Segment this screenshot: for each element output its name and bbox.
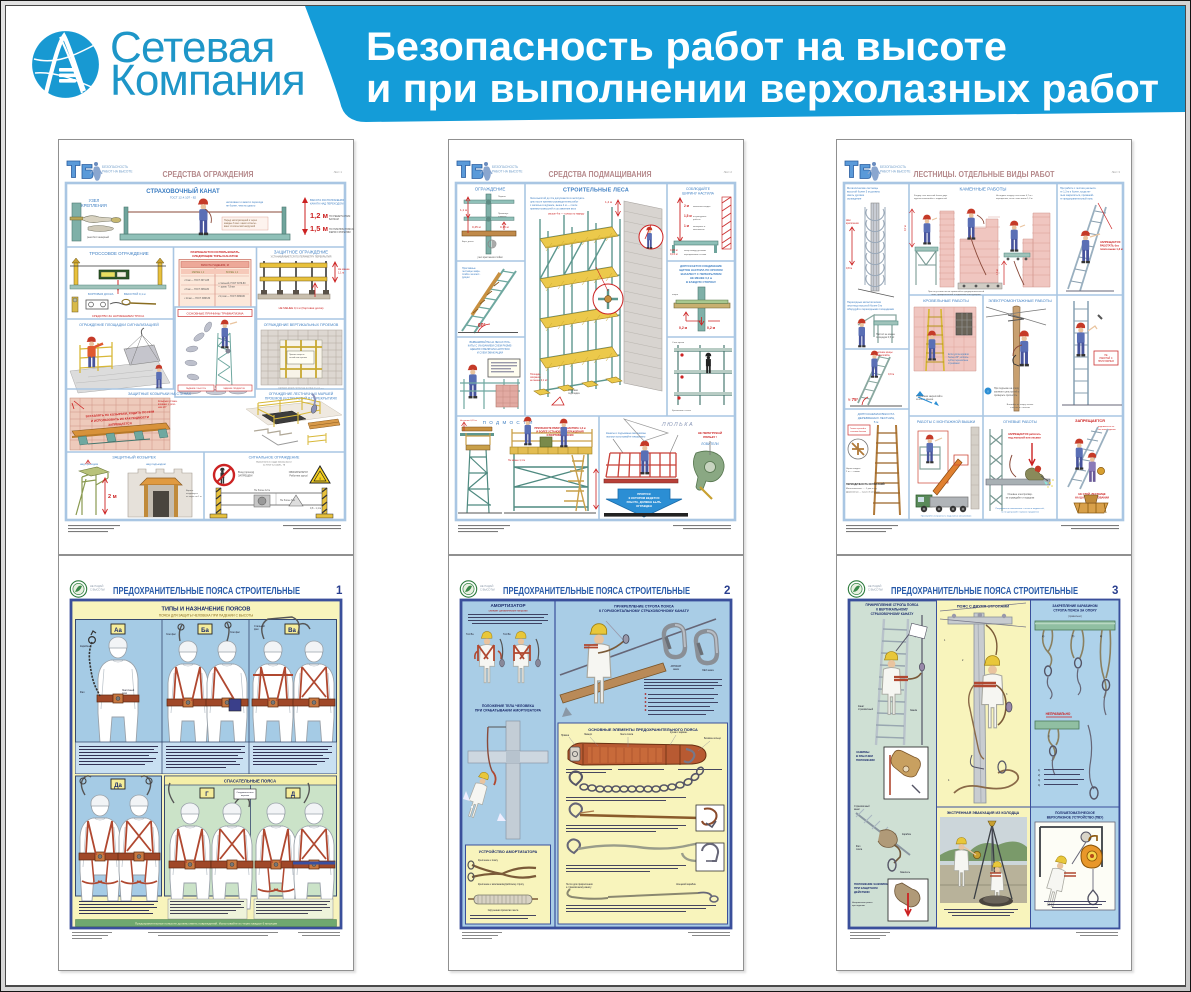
svg-text:ЩЕНИЯ И ВЕЛИЧИН НАГРУЗОК: ЩЕНИЯ И ВЕЛИЧИН НАГРУЗОК: [470, 347, 510, 351]
svg-text:• 8 мм — ГОСТ 3069-80: • 8 мм — ГОСТ 3069-80: [184, 289, 210, 291]
svg-text:СОБЛЮДАЙТЕ: СОБЛЮДАЙТЕ: [686, 187, 711, 191]
svg-text:веревка: веревка: [241, 795, 250, 797]
svg-text:1,4 м: 1,4 м: [605, 200, 612, 204]
svg-text:пояс, прикрепленный к надежным: пояс, прикрепленный к надежным конструкц…: [931, 293, 981, 296]
svg-text:0,2 м: 0,2 м: [707, 326, 716, 330]
svg-text:2 м: 2 м: [108, 494, 117, 500]
svg-text:штукатурные: штукатурные: [693, 216, 707, 218]
svg-text:2 м: 2 м: [684, 204, 690, 208]
svg-text:1: 1: [336, 585, 343, 597]
svg-text:БАЛКАМ: БАЛКАМ: [329, 218, 339, 221]
svg-text:Пряжка: Пряжка: [561, 735, 570, 737]
svg-text:Карабин: Карабин: [902, 834, 912, 836]
svg-text:ПРЕДОХРАНИТЕЛЬНЫЕ ПОЯСА СТРОИТ: ПРЕДОХРАНИТЕЛЬНЫЕ ПОЯСА СТРОИТЕЛЬНЫЕ: [891, 585, 1078, 597]
svg-text:ВЫСОТА РАСПОЛОЖЕНИЯ: ВЫСОТА РАСПОЛОЖЕНИЯ: [310, 198, 344, 202]
svg-text:оборудуйте переходными площадк: оборудуйте переходными площадками: [847, 307, 895, 311]
svg-text:НЕ ПАДАЙ: НЕ ПАДАЙ: [480, 584, 493, 588]
svg-text:РАБОТ НА ВЫСОТЕ: РАБОТ НА ВЫСОТЕ: [102, 170, 132, 174]
svg-text:Не более 12 м: Не более 12 м: [254, 489, 270, 492]
svg-text:ОГРАЖДЕНИЕ ВЕРТИКАЛЬНЫХ ПРОЕМО: ОГРАЖДЕНИЕ ВЕРТИКАЛЬНЫХ ПРОЕМОВ: [264, 323, 339, 327]
svg-text:БЕЗОПАСНОСТЬ: БЕЗОПАСНОСТЬ: [880, 165, 906, 169]
svg-text:от ворот на 1 м: от ворот на 1 м: [186, 496, 202, 498]
svg-text:РАБОТ НА ВЫСОТЕ: РАБОТ НА ВЫСОТЕ: [880, 170, 910, 174]
svg-text:СРЕДСТВА ОГРАЖДЕНИЯ: СРЕДСТВА ОГРАЖДЕНИЯ: [163, 169, 254, 179]
svg-text:при падении: при падении: [852, 905, 866, 907]
svg-text:ЗАПРЕЩЕН!: ЗАПРЕЩЕН!: [238, 475, 253, 478]
svg-text:ВЫВЕШИВАЙТЕ НА ЛЕСАХ ПЛА-: ВЫВЕШИВАЙТЕ НА ЛЕСАХ ПЛА-: [470, 340, 511, 344]
svg-text:!: !: [988, 390, 989, 394]
svg-text:И БОРТОВЫЕ ДОСКИ: И БОРТОВЫЕ ДОСКИ: [547, 434, 574, 437]
svg-text:замок: замок: [673, 669, 680, 671]
svg-text:КАМЕННЫЕ РАБОТЫ: КАМЕННЫЕ РАБОТЫ: [960, 187, 1007, 192]
svg-text:приемки комиссией и составлени: приемки комиссией и составления акта: [530, 208, 577, 211]
svg-text:Канаты и подъемные механизмы: Канаты и подъемные механизмы: [606, 431, 646, 435]
svg-text:пояса выше 1,3 м: пояса выше 1,3 м: [1100, 247, 1123, 251]
svg-text:ПРИКРЕПЛЕНИЕ СТРОПА ПОЯСА: ПРИКРЕПЛЕНИЕ СТРОПА ПОЯСА: [866, 603, 920, 607]
svg-text:Крепление к стене: Крепление к стене: [672, 410, 692, 412]
svg-text:Промежут.: Промежут.: [498, 213, 509, 215]
svg-text:Кладку стен высотой более двух: Кладку стен высотой более двух: [914, 194, 948, 197]
svg-text:Зажигель: Зажигель: [900, 872, 911, 874]
svg-text:стяжными болтами: стяжными болтами: [850, 431, 866, 433]
svg-text:ОГРАЖДЕН: ОГРАЖДЕН: [636, 504, 652, 508]
svg-text:ки ограждайте и подкурки: ки ограждайте и подкурки: [1006, 497, 1035, 500]
svg-text:Не более 6 м: Не более 6 м: [280, 499, 295, 502]
svg-text:СРЕДСТВА ПОДМАЩИВАНИЯ: СРЕДСТВА ПОДМАЩИВАНИЯ: [549, 169, 652, 179]
svg-text:рукции: рукции: [462, 276, 470, 279]
svg-text:• 6 мм — ГОСТ 3071-88: • 6 мм — ГОСТ 3071-88: [184, 280, 210, 282]
svg-text:Лист 1: Лист 1: [334, 170, 343, 174]
svg-text:Лента пояса: Лента пояса: [620, 734, 634, 736]
svg-text:закрепляйте: закрепляйте: [876, 354, 891, 357]
svg-text:Крепление к поясу: Крепление к поясу: [478, 860, 499, 862]
svg-text:Переходные металлические: Переходные металлические: [847, 300, 882, 304]
svg-text:Направление рывка: Направление рывка: [852, 902, 873, 904]
svg-text:не более, чем на одного: не более, чем на одного: [226, 204, 256, 208]
svg-text:1): 1): [1038, 769, 1040, 772]
svg-text:ЗАПРЕЩАЕТСЯ работать: ЗАПРЕЩАЕТСЯ работать: [1008, 432, 1041, 436]
svg-text:БЕЗ замка: БЕЗ замка: [702, 670, 714, 672]
svg-text:При отсутствии лесов применяйт: При отсутствии лесов применяйте предохра…: [928, 290, 985, 293]
svg-text:Безопасность работ на высоте: Безопасность работ на высоте: [366, 25, 1007, 69]
svg-text:Люверс: Люверс: [584, 734, 593, 736]
svg-text:пояс: пояс: [122, 692, 128, 695]
svg-text:Проверяйте исправность подъемн: Проверяйте исправность подъемных механиз…: [921, 515, 972, 518]
svg-text:ПОЛОЖЕНИИ: ПОЛОЖЕНИИ: [856, 758, 875, 762]
svg-text:ПРИСТАВНЫХ: ПРИСТАВНЫХ: [1098, 360, 1114, 363]
svg-text:отодвинуты: отодвинуты: [186, 493, 198, 495]
svg-text:2 м — стяжки: 2 м — стяжки: [846, 471, 860, 473]
svg-text:ОГРАЖДЕНИЕ: ОГРАЖДЕНИЕ: [475, 187, 506, 192]
svg-text:ГОСТ 12.4.107 - 82: ГОСТ 12.4.107 - 82: [170, 196, 197, 200]
svg-text:ПОЛУАВТОМАТИЧЕСКОЕ: ПОЛУАВТОМАТИЧЕСКОЕ: [1055, 811, 1095, 815]
svg-text:Кушак с карман.: Кушак с карман.: [670, 732, 688, 734]
svg-text:монтажные: монтажные: [693, 229, 705, 231]
svg-text:ограждение: ограждение: [847, 198, 862, 201]
svg-text:ЗАЩИТНЫЙ КОЗЫРЕК: ЗАЩИТНЫЙ КОЗЫРЕК: [112, 455, 156, 460]
svg-text:СПАСАТЕЛЬНЫЕ ПОЯСА: СПАСАТЕЛЬНЫЕ ПОЯСА: [224, 779, 276, 784]
svg-text:ПРЕДОХРАНИТЕЛЬНЫЕ ПОЯСА СТРОИТ: ПРЕДОХРАНИТЕЛЬНЫЕ ПОЯСА СТРОИТЕЛЬНЫЕ: [113, 585, 300, 597]
svg-text:ЗАЩИТНЫЕ КОЗЫРЬКИ НА СТЕНАХ: ЗАЩИТНЫЕ КОЗЫРЬКИ НА СТЕНАХ: [128, 392, 192, 396]
svg-text:К ГОРИЗОНТАЛЬНОМУ СТРАХОВОЧНОМ: К ГОРИЗОНТАЛЬНОМУ СТРАХОВОЧНОМУ КАНАТУ: [599, 609, 690, 613]
svg-text:Да: Да: [114, 783, 122, 789]
svg-text:Выполняется в виде безопасност: Выполняется в виде безопасности: [256, 462, 292, 464]
svg-text:Крепление к монтажному/рабочем: Крепление к монтажному/рабочему стропу: [478, 884, 525, 886]
svg-text:крепления: крепления: [846, 222, 859, 225]
svg-text:над подъездом: над подъездом: [146, 462, 166, 466]
svg-text:РАБОТАТЬ без: РАБОТАТЬ без: [1100, 244, 1120, 248]
svg-text:СИГНАЛЬНОЕ ОГРАЖДЕНИЕ: СИГНАЛЬНОЕ ОГРАЖДЕНИЕ: [249, 456, 300, 460]
svg-text:в когтях и с поясом: в когтях и с поясом: [1010, 407, 1030, 409]
svg-text:НЕ ПАДАЙ: НЕ ПАДАЙ: [90, 584, 103, 588]
svg-text:перекрытия, если стена выше 1,: перекрытия, если стена выше 1,3 м: [996, 198, 1033, 200]
svg-text:фал: фал: [254, 628, 259, 631]
svg-text:узел крепления стойки: узел крепления стойки: [477, 256, 503, 259]
svg-text:Влезайте на опору только: Влезайте на опору только: [1007, 403, 1034, 406]
svg-text:1,1 м: 1,1 м: [460, 208, 467, 212]
svg-text:ЗАЩИТНОЕ ОГРАЖДЕНИЕ: ЗАЩИТНОЕ ОГРАЖДЕНИЕ: [274, 250, 328, 255]
svg-text:Ва: Ва: [288, 628, 296, 634]
svg-text:проверьте прочность: проверьте прочность: [994, 394, 1018, 397]
svg-text:высотой более 5 м должны: высотой более 5 м должны: [847, 190, 880, 194]
svg-text:С ВЫСОТЫ!: С ВЫСОТЫ!: [480, 588, 495, 592]
svg-text:СТРАХОВОЧНЫЙ КАНАТ: СТРАХОВОЧНЫЙ КАНАТ: [146, 187, 220, 195]
svg-text:Не ведите кладку стен выше 0,7: Не ведите кладку стен выше 0,7 м с: [996, 195, 1034, 197]
svg-text:И СХЕМ ЭВАКУАЦИИ: И СХЕМ ЭВАКУАЦИИ: [477, 351, 503, 355]
svg-text:ТРОССОВОЕ ОГРАЖДЕНИЕ: ТРОССОВОЕ ОГРАЖДЕНИЕ: [89, 251, 149, 256]
svg-text:• 9,1 мм — ГОСТ 3088-80: • 9,1 мм — ГОСТ 3088-80: [218, 296, 246, 298]
svg-text:Лист 2: Лист 2: [724, 170, 733, 174]
svg-text:Аа: Аа: [114, 628, 122, 634]
svg-text:0,2 м: 0,2 м: [679, 326, 688, 330]
svg-text:ЛЮЛЬКУ !: ЛЮЛЬКУ !: [703, 435, 717, 439]
svg-text:0,15 м: 0,15 м: [670, 252, 678, 256]
svg-text:ЛЮЛЬКА: ЛЮЛЬКА: [661, 422, 694, 428]
svg-text:подниматься по: подниматься по: [1098, 426, 1115, 428]
svg-text:Лист 3: Лист 3: [1112, 170, 1121, 174]
svg-text:КАНАТА НАД ПЕРЕХОДОМ: КАНАТА НАД ПЕРЕХОДОМ: [310, 202, 343, 206]
svg-text:Фал: Фал: [856, 845, 861, 848]
svg-text:те предохранительный пояс: те предохранительный пояс: [1060, 198, 1093, 201]
svg-text:Проемы закрыть: Проемы закрыть: [289, 354, 305, 356]
svg-text:ТИПЫ И НАЗНАЧЕНИЕ ПОЯСОВ: ТИПЫ И НАЗНАЧЕНИЕ ПОЯСОВ: [162, 607, 251, 613]
svg-text:а): а): [1042, 634, 1044, 638]
svg-text:Фал: Фал: [80, 691, 85, 694]
svg-text:!: !: [319, 476, 320, 481]
svg-text:но не допускайте горючих предм: но не допускайте горючих предметов: [1001, 511, 1040, 514]
svg-text:Не менее 0,15 м: Не менее 0,15 м: [460, 420, 477, 422]
svg-text:1,5 м: 1,5 м: [310, 224, 329, 233]
svg-text:ВЕРХОЛАЗНОЕ УСТРОЙСТВО (ПВУ): ВЕРХОЛАЗНОЕ УСТРОЙСТВО (ПВУ): [1047, 816, 1104, 820]
svg-text:опора: опора: [672, 294, 679, 296]
svg-text:Канат: Канат: [858, 706, 865, 708]
svg-text:Работник здесь!: Работник здесь!: [289, 475, 308, 478]
svg-text:малярные и: малярные и: [693, 226, 706, 228]
svg-text:ПЕРИОДИЧНОСТЬ ИСПЫТАНИЙ:: ПЕРИОДИЧНОСТЬ ИСПЫТАНИЙ:: [846, 483, 885, 486]
svg-text:ПРИ СРАБАТЫВАНИИ АМОРТИЗАТОРА: ПРИ СРАБАТЫВАНИИ АМОРТИЗАТОРА: [475, 709, 542, 713]
svg-text:ФЕРМ И РИГЕЛЯМ: ФЕРМ И РИГЕЛЯМ: [329, 231, 351, 234]
svg-text:К ВЕРТИКАЛЬНОМУ: К ВЕРТИКАЛЬНОМУ: [876, 608, 909, 612]
svg-text:(правильно): (правильно): [1068, 615, 1082, 618]
svg-text:Не менее: Не менее: [338, 267, 350, 271]
svg-text:канат: канат: [854, 809, 861, 811]
svg-text:Страховочный: Страховочный: [854, 805, 870, 808]
svg-text:свыше 4 м — только по наряду: свыше 4 м — только по наряду: [548, 213, 585, 216]
svg-text:С ВЫСОТЫ!: С ВЫСОТЫ!: [90, 588, 105, 592]
svg-text:2: 2: [724, 585, 730, 597]
svg-text:Петля для прикрепления: Петля для прикрепления: [566, 884, 593, 886]
svg-text:МЕНЕЕ 1,2: МЕНЕЕ 1,2: [192, 271, 205, 274]
svg-text:КРОВЕЛЬНЫЕ РАБОТЫ: КРОВЕЛЬНЫЕ РАБОТЫ: [923, 298, 969, 303]
svg-text:ПОЛОЖЕНИЕ ТЕЛА ЧЕЛОВЕКА: ПОЛОЖЕНИЕ ТЕЛА ЧЕЛОВЕКА: [482, 704, 535, 708]
svg-text:ярусов выполняйте с подмостей: ярусов выполняйте с подмостей: [914, 197, 948, 200]
svg-text:ШИРИНУ НАСТИЛА: ШИРИНУ НАСТИЛА: [682, 192, 714, 196]
svg-text:Карабин: Карабин: [80, 645, 90, 648]
svg-text:ПОЯСА ДЛЯ ЗАЩИТЫ ЧЕЛОВЕКА ПРИ: ПОЯСА ДЛЯ ЗАЩИТЫ ЧЕЛОВЕКА ПРИ ПАДЕНИИ С …: [159, 614, 254, 618]
svg-text:0,05 м: 0,05 м: [670, 248, 678, 252]
svg-text:1,1 м: 1,1 м: [338, 271, 344, 275]
svg-text:перекрывание стыков: перекрывание стыков: [684, 254, 707, 256]
svg-text:НЕПРАВИЛЬНО: НЕПРАВИЛЬНО: [1046, 712, 1071, 716]
svg-text:и при выполнении верхолазных р: и при выполнении верхолазных работ: [366, 67, 1159, 111]
svg-text:Соединительная: Соединительная: [236, 792, 254, 794]
svg-text:площадки 0,5 м²: площадки 0,5 м²: [876, 336, 894, 339]
svg-text:НЕ ПАДАЙ: НЕ ПАДАЙ: [868, 584, 881, 588]
svg-text:стремянки: стремянки: [948, 362, 960, 365]
svg-text:ПРЕДОХРАНИТЕЛЬНЫЕ ПОЯСА СТРОИТ: ПРЕДОХРАНИТЕЛЬНЫЕ ПОЯСА СТРОИТЕЛЬНЫЕ: [503, 585, 690, 597]
svg-text:ОГНЕВЫЕ РАБОТЫ: ОГНЕВЫЕ РАБОТЫ: [1003, 420, 1037, 424]
svg-text:СТРОИТЕЛЬНЫЕ ЛЕСА: СТРОИТЕЛЬНЫЕ ЛЕСА: [563, 188, 629, 194]
svg-text:лестницы высотой более 5 м: лестницы высотой более 5 м: [847, 304, 882, 308]
svg-text:Борт. доска: Борт. доска: [462, 241, 474, 243]
svg-text:Не менее 1,1 м: Не менее 1,1 м: [508, 459, 525, 462]
svg-text:СРЕДСТВО ЗА НАТЯЖЕНИЕМ ТРОСА: СРЕДСТВО ЗА НАТЯЖЕНИЕМ ТРОСА: [92, 314, 144, 318]
svg-text:страховочный: страховочный: [858, 708, 874, 711]
svg-text:Скрученная прошитая лента: Скрученная прошитая лента: [488, 910, 519, 912]
svg-text:1,2 м: 1,2 м: [310, 211, 329, 220]
svg-text:Деревянных ... 1 раз в 6 месяц: Деревянных ... 1 раз в 6 месяцев: [846, 492, 880, 494]
svg-text:Разрешается выполнение с лесов: Разрешается выполнение с лесов и подмост…: [996, 507, 1045, 510]
svg-text:работы: работы: [693, 219, 701, 221]
svg-text:Зажим: Зажим: [910, 710, 917, 712]
svg-text:ЗАПРЕЩАЕТСЯ: ЗАПРЕЩАЕТСЯ: [1100, 240, 1120, 244]
svg-text:БОЛЕЕ 1,2: БОЛЕЕ 1,2: [226, 271, 239, 274]
svg-text:в): в): [1100, 634, 1102, 638]
svg-text:0,8 м: 0,8 м: [846, 266, 852, 270]
svg-text:Металлические лестницы: Металлические лестницы: [847, 186, 878, 190]
svg-text:Тетивы скрепляйте: Тетивы скрепляйте: [850, 427, 866, 430]
svg-text:0,7 м: 0,7 м: [904, 225, 907, 231]
svg-text:Хом.фал: Хом.фал: [166, 633, 177, 636]
svg-text:ОГРАЖДЕНИЕ ПЛОЩАДКИ СИГНАЛИЗАЦ: ОГРАЖДЕНИЕ ПЛОЩАДКИ СИГНАЛИЗАЦИЕЙ: [79, 323, 159, 327]
svg-text:≈ 75°: ≈ 75°: [848, 397, 859, 402]
svg-text:Перила: Перила: [498, 196, 507, 198]
svg-text:АМОРТИЗАТОР: АМОРТИЗАТОР: [490, 603, 525, 608]
svg-text:пояса: пояса: [856, 849, 863, 851]
svg-text:БОРТОВАЯ ДОСКА: БОРТОВАЯ ДОСКА: [88, 292, 114, 296]
svg-text:1,3 м: 1,3 м: [996, 269, 999, 275]
svg-text:НЕ МЕНЕЕ 0,1 м (бортовая доска: НЕ МЕНЕЕ 0,1 м (бортовая доска): [279, 306, 324, 310]
svg-text:1,5 м: 1,5 м: [684, 214, 692, 218]
svg-text:каменная кладка: каменная кладка: [693, 206, 711, 208]
svg-text:4): 4): [1038, 784, 1040, 787]
svg-text:СЛЕДУЮЩИЕ ТИПЫ КАНАТОВ: СЛЕДУЮЩИЕ ТИПЫ КАНАТОВ: [192, 254, 239, 258]
svg-text:элемент: элемент: [498, 216, 507, 218]
svg-text:Стык щитов: Стык щитов: [672, 342, 685, 344]
svg-text:ЛЕСТНИЦЫ. ОТДЕЛЬНЫЕ ВИДЫ РАБОТ: ЛЕСТНИЦЫ. ОТДЕЛЬНЫЕ ВИДЫ РАБОТ: [914, 169, 1056, 179]
svg-text:ПАДЕНИЕ ПРЕДМЕТОВ: ПАДЕНИЕ ПРЕДМЕТОВ: [223, 387, 245, 390]
svg-text:• 11 мм — ГОСТ 3088-80: • 11 мм — ГОСТ 3088-80: [184, 298, 211, 300]
svg-text:к страховочному канату: к страховочному канату: [566, 887, 592, 889]
svg-text:В КАЖДУЮ СТОРОНУ: В КАЖДУЮ СТОРОНУ: [686, 280, 716, 284]
svg-text:УСТАНАВЛИВАЕТСЯ ПО ПЕРИМЕТРУ П: УСТАНАВЛИВАЕТСЯ ПО ПЕРИМЕТРУ ПЕРЕКРЫТИЯ: [271, 256, 332, 259]
svg-text:0,45 м: 0,45 м: [472, 225, 481, 229]
svg-text:Предохранительные пояса не дол: Предохранительные пояса не должны иметь …: [135, 922, 277, 926]
svg-text:сеткой или щитами: сеткой или щитами: [289, 356, 307, 359]
svg-text:КРЕПЛЕНИЯ: КРЕПЛЕНИЯ: [81, 203, 107, 208]
svg-text:• стальной, ГОСТ 3079-80: • стальной, ГОСТ 3079-80: [218, 282, 246, 285]
svg-text:Ворота: Ворота: [186, 490, 194, 492]
svg-text:ДЕЙСТВИИ: ДЕЙСТВИИ: [854, 890, 870, 894]
svg-text:Тип Ва: Тип Ва: [466, 633, 474, 636]
svg-text:РАБОТ НА ВЫСОТЕ: РАБОТ НА ВЫСОТЕ: [492, 170, 522, 174]
svg-text:Тип Вв: Тип Вв: [503, 633, 511, 636]
svg-text:С ВЫСОТЫ!: С ВЫСОТЫ!: [868, 588, 883, 592]
svg-text:Ба: Ба: [201, 628, 209, 634]
svg-text:Боковое кольцо: Боковое кольцо: [704, 738, 722, 740]
svg-text:снижает динамические нагрузки: снижает динамические нагрузки: [489, 610, 528, 613]
svg-text:над проходом: над проходом: [80, 462, 98, 466]
svg-text:Г: Г: [205, 792, 209, 798]
svg-text:АВТОМАТ: АВТОМАТ: [671, 665, 682, 668]
svg-text:ЗАПРЕЩАЕТСЯ: ЗАПРЕЩАЕТСЯ: [1075, 419, 1105, 423]
svg-text:подкладка: подкладка: [568, 392, 580, 395]
svg-text:0,9 м: 0,9 м: [888, 372, 894, 376]
svg-text:СТРАХОВОЧНОМУ КАНАТУ: СТРАХОВОЧНОМУ КАНАТУ: [871, 612, 915, 616]
svg-text:ОСНОВНЫЕ ПРИЧИНЫ ТРАВМАТИЗМА: ОСНОВНЫЕ ПРИЧИНЫ ТРАВМАТИЗМА: [187, 312, 244, 316]
svg-text:2): 2): [1038, 774, 1040, 777]
svg-text:ПРИКРЕПЛЕНИЕ СТРОПА ПОЯСА: ПРИКРЕПЛЕНИЕ СТРОПА ПОЯСА: [614, 605, 674, 609]
svg-text:ПАДЕНИЕ С ВЫСОТЫ: ПАДЕНИЕ С ВЫСОТЫ: [186, 387, 207, 390]
svg-text:ВЫСОТОЙ 0,1 м: ВЫСОТОЙ 0,1 м: [124, 292, 146, 296]
svg-text:0,8 - 1,1 м: 0,8 - 1,1 м: [310, 507, 321, 510]
svg-text:СТРОПА ПОЯСА ЗА ОПОРУ: СТРОПА ПОЯСА ЗА ОПОРУ: [1053, 609, 1097, 613]
svg-text:60°: 60°: [478, 323, 486, 329]
svg-text:— диам. 7,8 мм: — диам. 7,8 мм: [218, 287, 235, 289]
svg-text:3): 3): [1038, 779, 1040, 782]
svg-text:Концевой карабин: Концевой карабин: [676, 883, 696, 886]
svg-text:3: 3: [1112, 585, 1118, 597]
svg-text:рым-болт анкерный: рым-болт анкерный: [87, 236, 110, 239]
svg-text:ном 20°: ном 20°: [158, 406, 167, 409]
svg-text:б): б): [1072, 634, 1074, 638]
svg-text:не менее 0,1 м²: не менее 0,1 м²: [530, 379, 548, 382]
svg-text:Через каждые: Через каждые: [846, 468, 861, 470]
svg-text:БЕЗОПАСНОСТЬ: БЕЗОПАСНОСТЬ: [102, 165, 128, 169]
svg-text:НЕ: НЕ: [1104, 355, 1108, 357]
svg-text:Д: Д: [291, 792, 296, 798]
svg-text:вают статической нагрузкой: вают статической нагрузкой: [224, 225, 256, 228]
svg-text:КАТЫ С УКАЗАНИЕМ СХЕМ РАЗМЕ-: КАТЫ С УКАЗАНИЕМ СХЕМ РАЗМЕ-: [468, 344, 513, 348]
svg-text:ЭЛЕКТРОМОНТАЖНЫЕ РАБОТЫ: ЭЛЕКТРОМОНТАЖНЫЕ РАБОТЫ: [988, 298, 1052, 303]
svg-text:ОГРАЖДЕНИЕ ЛЕСТНИЧНЫХ МАРШЕЙ: ОГРАЖДЕНИЕ ЛЕСТНИЧНЫХ МАРШЕЙ: [269, 392, 334, 396]
svg-text:Металлических ..... 1 раз в го: Металлических ..... 1 раз в год: [846, 488, 877, 490]
svg-text:по ГОСТ 12.4.026 - 76: по ГОСТ 12.4.026 - 76: [263, 465, 286, 467]
svg-text:под люлькой или лесами: под люлькой или лесами: [1008, 436, 1041, 440]
svg-text:ВИСОТА ПАДЕНИЯ, М: ВИСОТА ПАДЕНИЯ, М: [201, 263, 229, 267]
svg-text:0,15 м: 0,15 м: [500, 225, 509, 229]
svg-text:ЭКСТРЕННАЯ ЭВАКУАЦИЯ ИЗ КОЛОДЦ: ЭКСТРЕННАЯ ЭВАКУАЦИЯ ИЗ КОЛОДЦА: [947, 811, 1020, 815]
svg-text:5 м: 5 м: [874, 420, 879, 424]
svg-text:1 м: 1 м: [684, 224, 690, 228]
svg-text:Хом.фал: Хом.фал: [230, 631, 241, 634]
svg-text:ЗАКРЕПЛЕНИЕ КАРАБИНОМ: ЗАКРЕПЛЕНИЕ КАРАБИНОМ: [1052, 604, 1098, 608]
svg-text:БЕЗОПАСНОСТЬ: БЕЗОПАСНОСТЬ: [492, 165, 518, 169]
svg-text:РАБОТЫ С МОНТАЖНОЙ ВЫШКИ: РАБОТЫ С МОНТАЖНОЙ ВЫШКИ: [917, 420, 976, 424]
svg-text:г): г): [1048, 735, 1050, 738]
svg-text:УСТРОЙСТВО АМОРТИЗАТОРА: УСТРОЙСТВО АМОРТИЗАТОРА: [479, 850, 538, 854]
svg-text:РАБОТАЙ С: РАБОТАЙ С: [1100, 357, 1113, 360]
svg-text:зазор между досками: зазор между досками: [684, 250, 707, 252]
